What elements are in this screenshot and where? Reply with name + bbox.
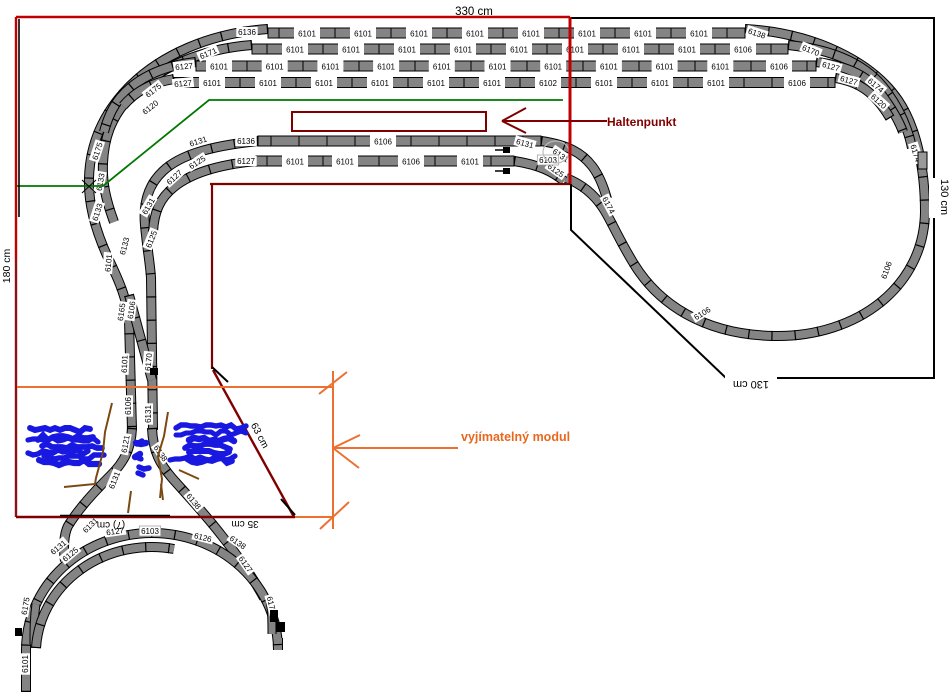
svg-text:6136: 6136	[238, 28, 256, 37]
svg-text:6103: 6103	[141, 527, 159, 536]
svg-text:180 cm: 180 cm	[1, 249, 13, 284]
svg-text:6127: 6127	[175, 61, 194, 72]
svg-text:6101: 6101	[286, 158, 304, 167]
svg-text:6101: 6101	[336, 158, 354, 167]
svg-text:6106: 6106	[402, 158, 420, 167]
svg-text:330 cm: 330 cm	[455, 6, 493, 18]
svg-text:6101: 6101	[678, 46, 696, 55]
svg-text:6101: 6101	[266, 63, 284, 72]
svg-text:(7) cm: (7) cm	[97, 519, 125, 530]
svg-text:6101: 6101	[433, 63, 451, 72]
svg-text:6101: 6101	[21, 655, 30, 673]
svg-text:6106: 6106	[879, 260, 894, 280]
svg-text:6101: 6101	[466, 30, 484, 39]
svg-text:6101: 6101	[259, 79, 277, 88]
svg-text:6101: 6101	[711, 63, 729, 72]
svg-text:6101: 6101	[510, 46, 528, 55]
svg-text:6102: 6102	[539, 79, 557, 88]
svg-text:6101: 6101	[454, 46, 472, 55]
svg-text:6106: 6106	[788, 79, 806, 88]
svg-text:6106: 6106	[374, 138, 392, 147]
svg-text:6101: 6101	[651, 79, 669, 88]
svg-text:130 cm: 130 cm	[938, 179, 950, 215]
svg-text:6101: 6101	[103, 253, 114, 272]
svg-text:6131: 6131	[144, 405, 153, 423]
svg-text:Haltenpunkt: Haltenpunkt	[607, 115, 676, 129]
svg-text:6106: 6106	[124, 397, 133, 415]
svg-text:6101: 6101	[298, 30, 316, 39]
svg-text:130 cm: 130 cm	[733, 378, 769, 390]
svg-text:6101: 6101	[203, 79, 221, 88]
svg-text:6101: 6101	[522, 30, 540, 39]
svg-text:6101: 6101	[410, 30, 428, 39]
svg-text:63 cm: 63 cm	[248, 421, 270, 450]
svg-text:6101: 6101	[461, 158, 479, 167]
svg-text:6101: 6101	[483, 79, 501, 88]
svg-text:6101: 6101	[600, 63, 618, 72]
svg-text:6101: 6101	[622, 46, 640, 55]
svg-text:6101: 6101	[427, 79, 445, 88]
svg-text:6106: 6106	[770, 63, 788, 72]
svg-text:6101: 6101	[595, 79, 613, 88]
svg-text:6101: 6101	[489, 63, 507, 72]
svg-text:6101: 6101	[120, 354, 130, 373]
svg-text:6101: 6101	[377, 63, 395, 72]
svg-text:6101: 6101	[707, 79, 725, 88]
svg-text:35 cm: 35 cm	[231, 518, 258, 529]
svg-text:6127: 6127	[237, 157, 255, 166]
svg-text:6136: 6136	[237, 137, 255, 146]
svg-text:6101: 6101	[578, 30, 596, 39]
svg-text:6106: 6106	[734, 46, 752, 55]
svg-text:6101: 6101	[315, 79, 333, 88]
svg-text:6101: 6101	[354, 30, 372, 39]
svg-text:6101: 6101	[210, 63, 228, 72]
svg-text:6101: 6101	[322, 63, 340, 72]
svg-text:6101: 6101	[656, 63, 674, 72]
svg-text:6127: 6127	[174, 78, 193, 89]
svg-text:6101: 6101	[286, 46, 304, 55]
svg-text:6101: 6101	[544, 63, 562, 72]
svg-text:6101: 6101	[398, 46, 416, 55]
svg-text:6101: 6101	[342, 46, 360, 55]
svg-text:6101: 6101	[634, 30, 652, 39]
svg-text:6101: 6101	[371, 79, 389, 88]
svg-text:6101: 6101	[690, 30, 708, 39]
svg-text:6133: 6133	[118, 236, 131, 256]
svg-text:vyjímatelný modul: vyjímatelný modul	[461, 430, 570, 444]
